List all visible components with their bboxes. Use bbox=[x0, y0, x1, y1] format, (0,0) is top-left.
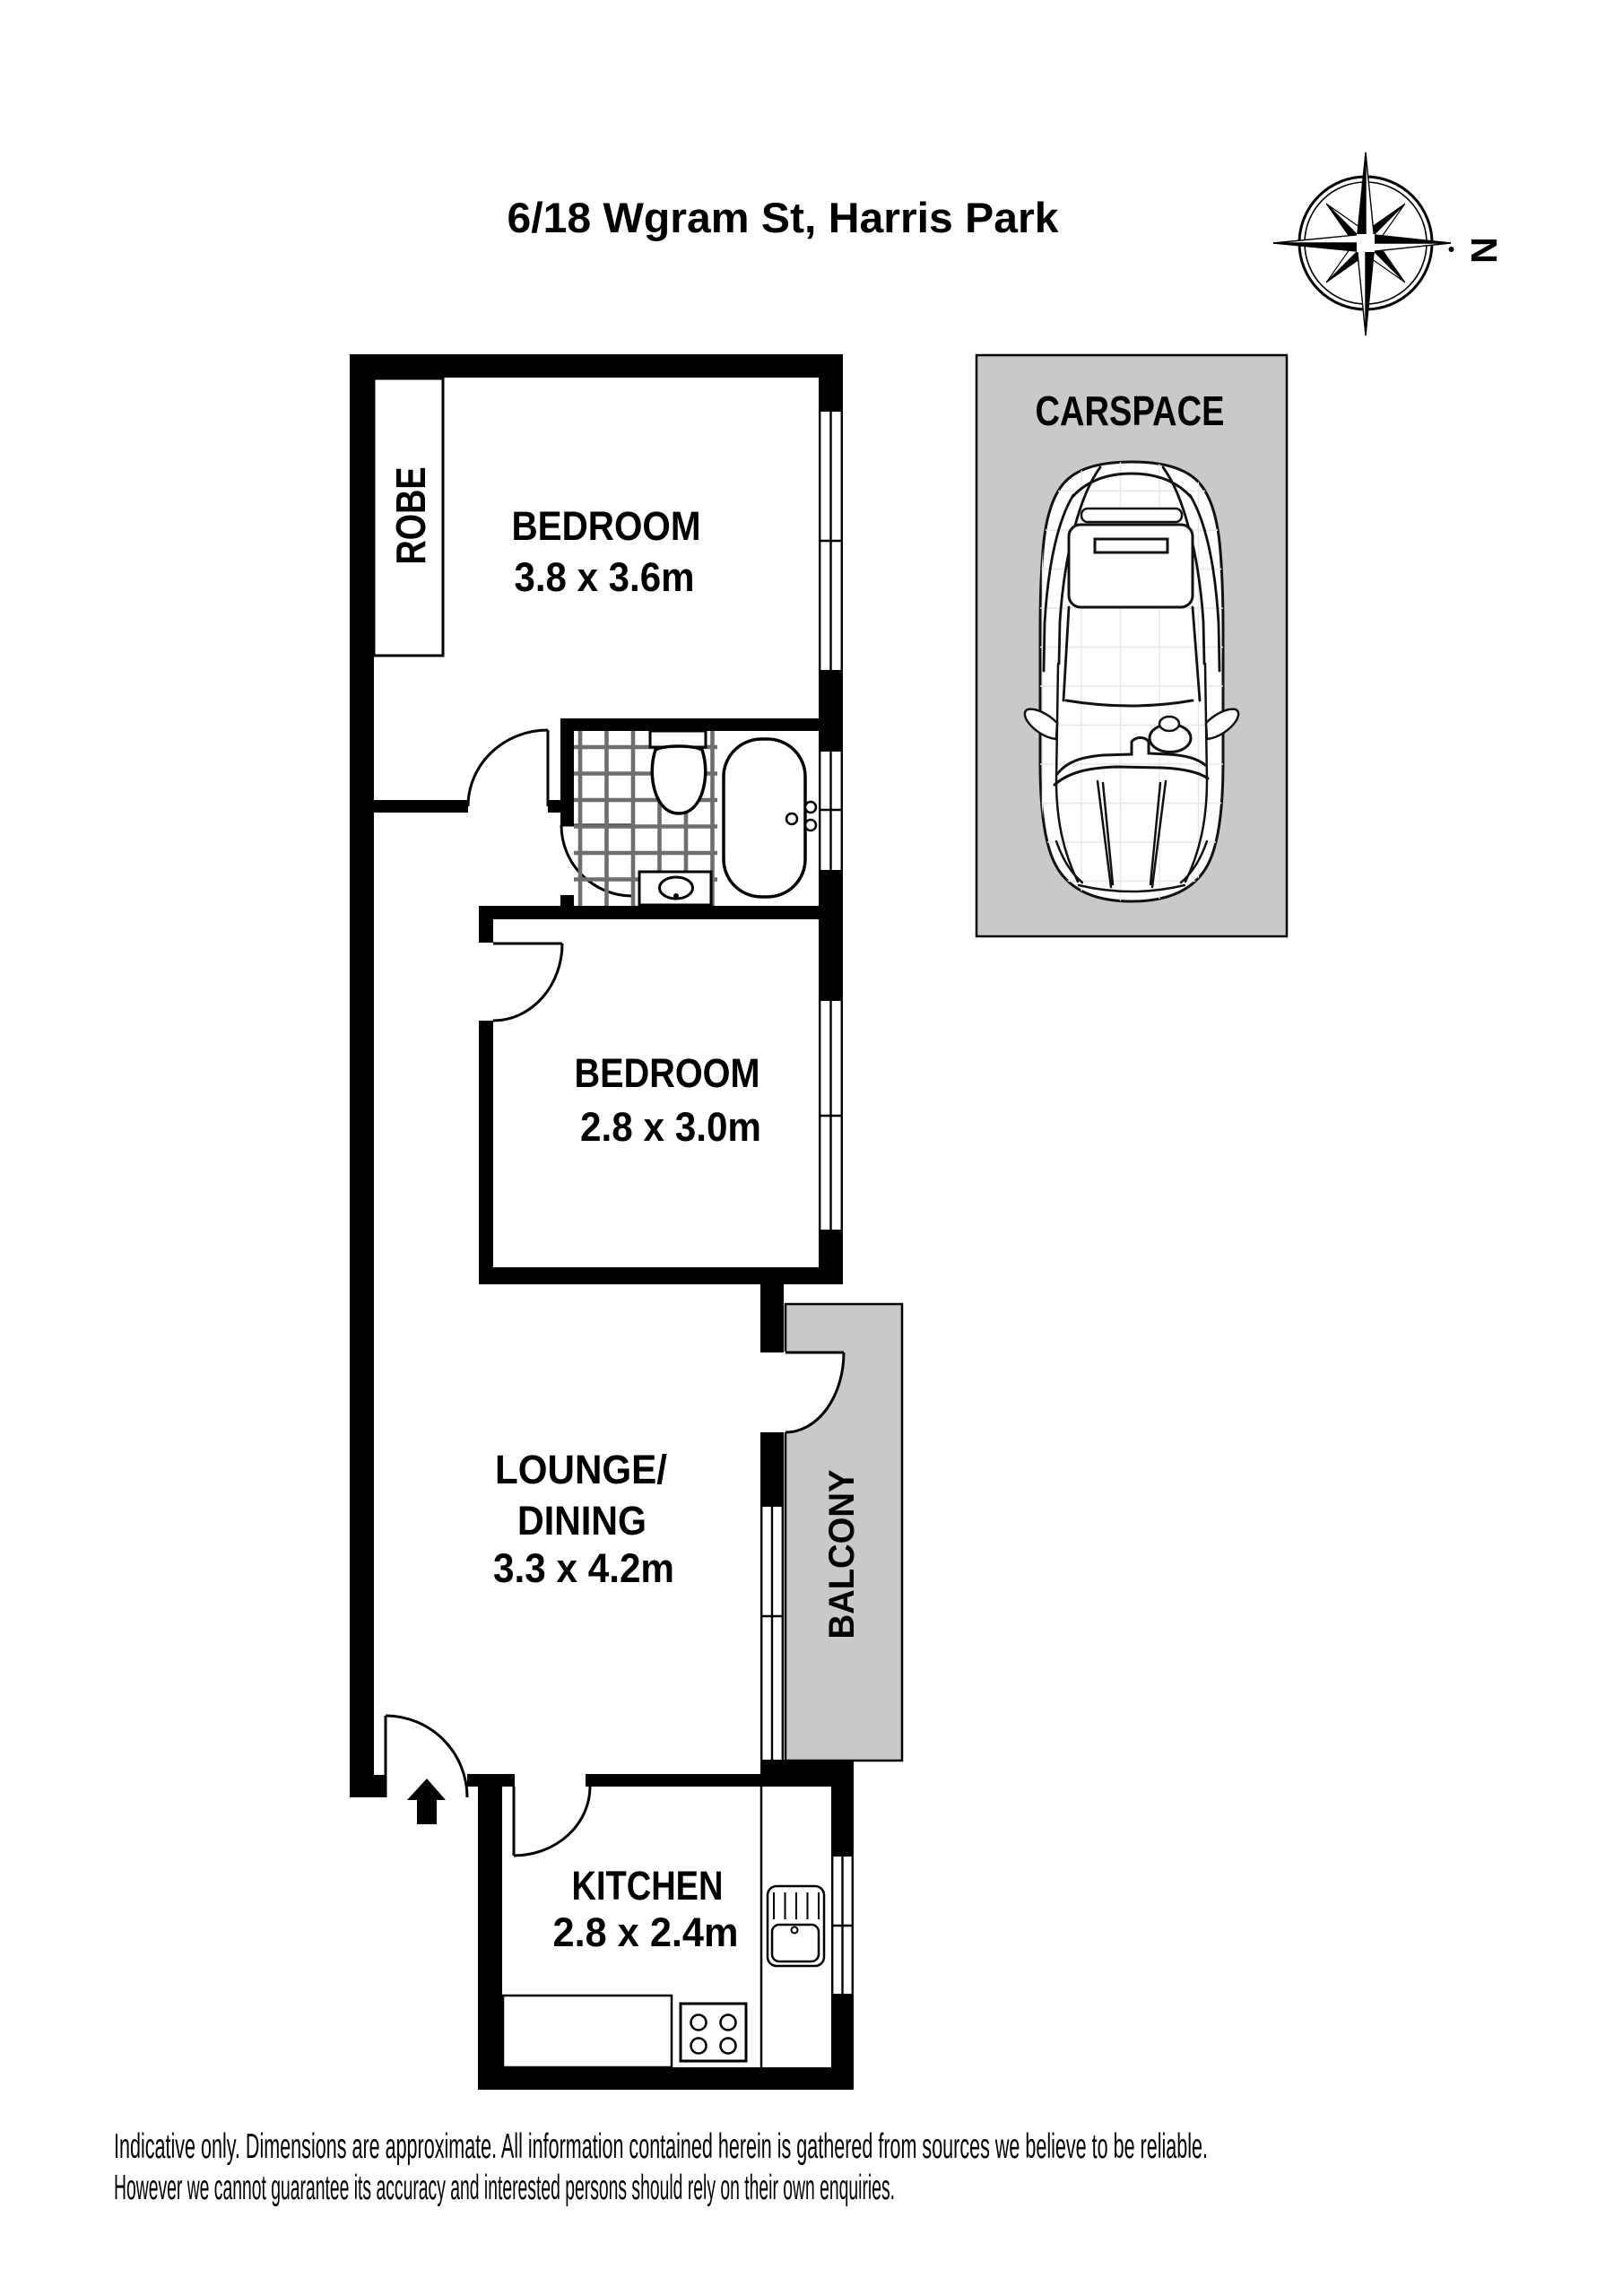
svg-text:N: N bbox=[1463, 237, 1505, 264]
svg-text:2.8 x 2.4m: 2.8 x 2.4m bbox=[553, 1909, 739, 1955]
svg-text:BEDROOM: BEDROOM bbox=[512, 503, 701, 549]
svg-text:BALCONY: BALCONY bbox=[822, 1469, 862, 1639]
svg-text:DINING: DINING bbox=[517, 1498, 647, 1544]
svg-text:ROBE: ROBE bbox=[387, 467, 434, 565]
svg-text:CARSPACE: CARSPACE bbox=[1036, 387, 1225, 434]
svg-text:3.8 x 3.6m: 3.8 x 3.6m bbox=[515, 554, 695, 600]
svg-text:6/18 Wgram St, Harris Park: 6/18 Wgram St, Harris Park bbox=[508, 194, 1060, 241]
svg-text:KITCHEN: KITCHEN bbox=[572, 1863, 724, 1909]
svg-text:BEDROOM: BEDROOM bbox=[575, 1050, 760, 1096]
svg-text:2.8 x 3.0m: 2.8 x 3.0m bbox=[580, 1104, 761, 1150]
svg-text:LOUNGE/: LOUNGE/ bbox=[495, 1447, 667, 1492]
svg-text:3.3 x 4.2m: 3.3 x 4.2m bbox=[493, 1545, 674, 1591]
svg-text:Indicative only. Dimensions ar: Indicative only. Dimensions are approxim… bbox=[114, 2127, 1208, 2166]
svg-text:However we cannot guarantee it: However we cannot guarantee its accuracy… bbox=[114, 2169, 895, 2207]
